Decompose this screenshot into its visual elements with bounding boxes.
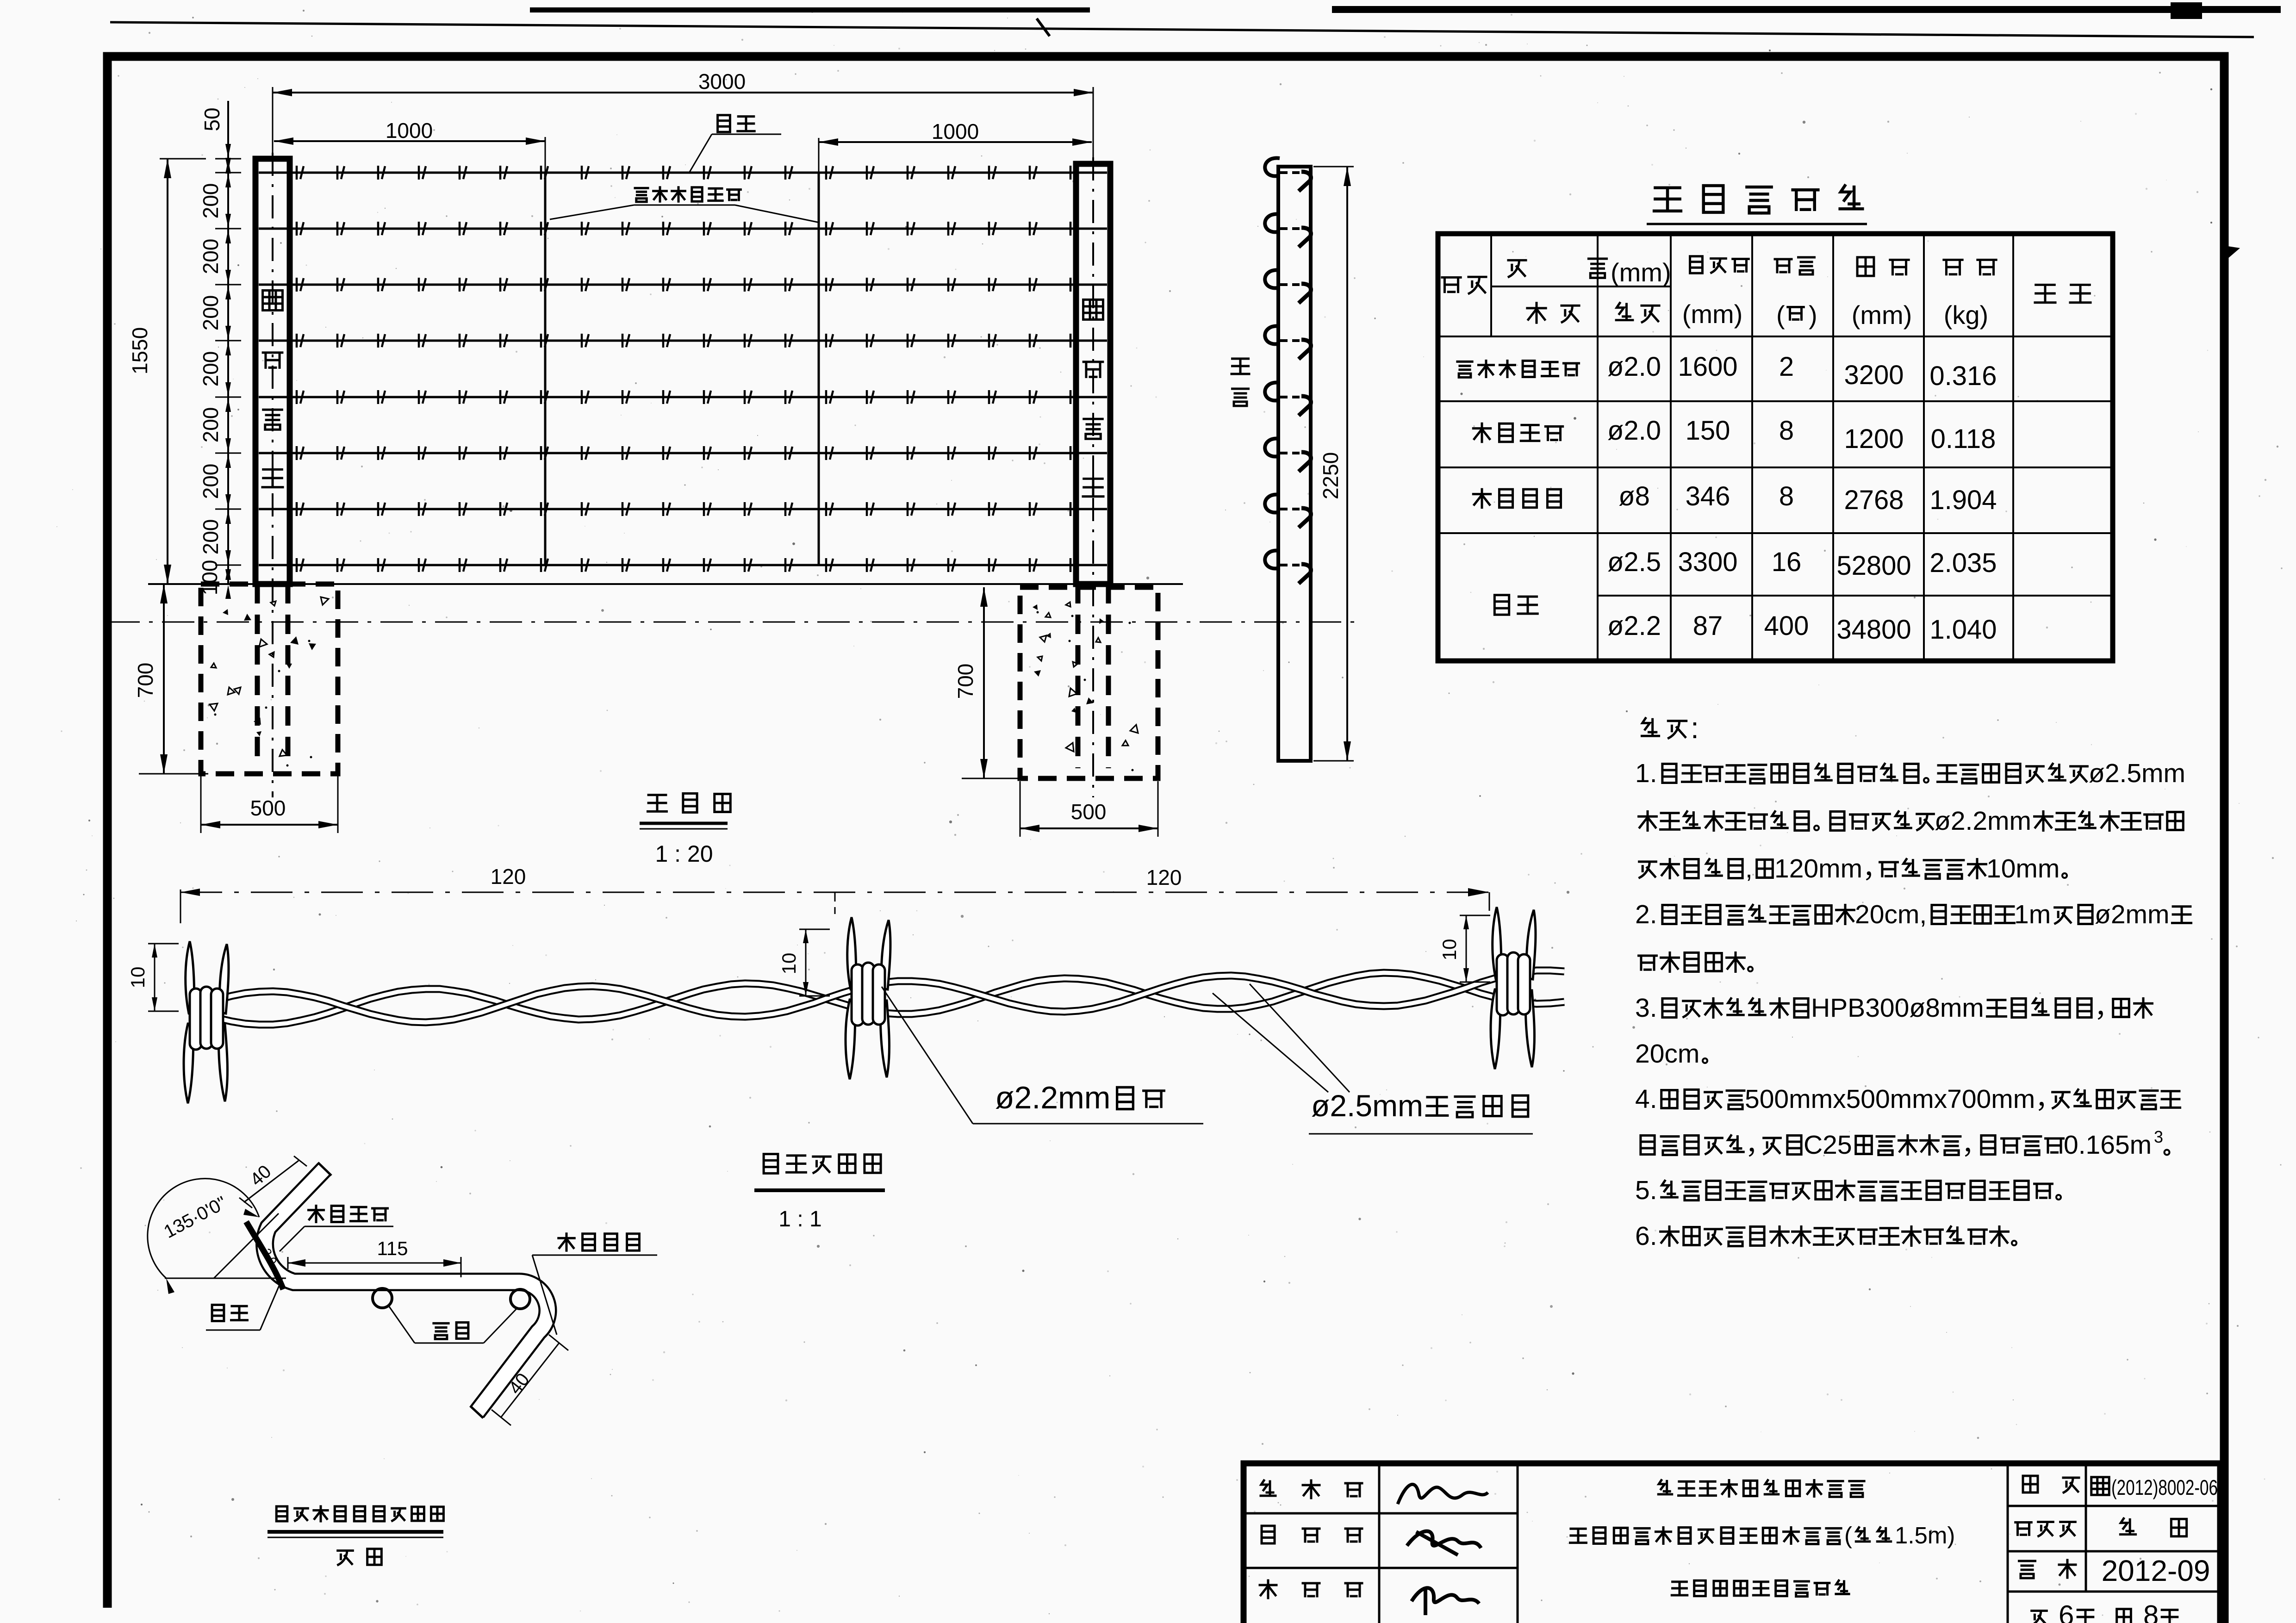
svg-text:(mm): (mm): [1852, 300, 1912, 330]
svg-text:1600: 1600: [1678, 352, 1737, 382]
svg-text:ø2.5: ø2.5: [1607, 547, 1661, 577]
svg-text:ø2.5mm: ø2.5mm: [1311, 1088, 1423, 1123]
svg-text:700: 700: [133, 663, 157, 698]
svg-text:4.: 4.: [1635, 1084, 1657, 1114]
svg-text:3200: 3200: [1844, 360, 1904, 390]
svg-text:HPB300ø8mm: HPB300ø8mm: [1811, 993, 1984, 1023]
svg-text:87: 87: [1693, 611, 1723, 641]
svg-text:2: 2: [1779, 352, 1794, 382]
svg-text::: :: [1691, 711, 1699, 745]
svg-text:2.: 2.: [1635, 900, 1657, 929]
svg-text:6: 6: [2059, 1600, 2074, 1623]
svg-text:): ): [1809, 300, 1817, 330]
svg-text:150: 150: [1686, 416, 1730, 446]
svg-text:1200: 1200: [1844, 424, 1904, 454]
svg-text:(: (: [1776, 300, 1785, 330]
svg-text:20cm,: 20cm,: [1855, 900, 1927, 929]
svg-text:ø2.5mm: ø2.5mm: [2089, 759, 2185, 788]
svg-text:52800: 52800: [1836, 551, 1911, 581]
svg-text:1m: 1m: [2014, 900, 2051, 929]
svg-text:ø2.0: ø2.0: [1607, 416, 1661, 446]
svg-text:400: 400: [1764, 611, 1809, 641]
svg-text:8: 8: [2143, 1600, 2159, 1623]
svg-text:2768: 2768: [1844, 485, 1904, 515]
svg-text:1.040: 1.040: [1929, 615, 1997, 645]
svg-text:100: 100: [198, 560, 222, 596]
svg-text:16: 16: [1772, 547, 1802, 577]
svg-text:500: 500: [1071, 800, 1107, 824]
svg-text:ø2.2mm: ø2.2mm: [1935, 806, 2031, 836]
svg-text:200: 200: [199, 351, 223, 387]
svg-text:(mm): (mm): [1611, 258, 1671, 287]
svg-text:1550: 1550: [128, 327, 152, 374]
svg-text:8: 8: [1779, 416, 1794, 446]
svg-text:5.: 5.: [1635, 1175, 1657, 1205]
svg-text:10: 10: [127, 967, 149, 989]
svg-text:3000: 3000: [698, 69, 746, 93]
svg-text:200: 200: [199, 519, 223, 555]
svg-text:10: 10: [778, 953, 800, 975]
svg-text:C25: C25: [1804, 1130, 1852, 1160]
svg-text:200: 200: [199, 464, 223, 499]
svg-text:ø8: ø8: [1618, 481, 1650, 511]
svg-text:ø2mm: ø2mm: [2095, 900, 2169, 929]
svg-text:10mm: 10mm: [1986, 854, 2060, 883]
svg-text:3300: 3300: [1678, 547, 1737, 577]
svg-text:1 : 1: 1 : 1: [778, 1207, 821, 1231]
svg-text:120mm，: 120mm，: [1774, 854, 1889, 883]
svg-text:(kg): (kg): [1944, 300, 1988, 330]
svg-text:115: 115: [377, 1237, 408, 1259]
svg-text:2012-09: 2012-09: [2102, 1554, 2210, 1587]
svg-text:,: ,: [1745, 854, 1753, 883]
svg-text:200: 200: [199, 239, 223, 274]
svg-text:50: 50: [200, 107, 224, 131]
svg-text:1 : 20: 1 : 20: [655, 841, 713, 867]
svg-text:(: (: [1844, 1522, 1852, 1548]
svg-text:700: 700: [953, 664, 977, 699]
svg-text:1.904: 1.904: [1929, 485, 1997, 515]
svg-text:1.: 1.: [1635, 759, 1657, 788]
svg-text:6.: 6.: [1635, 1221, 1657, 1251]
svg-text:34800: 34800: [1836, 615, 1911, 645]
svg-text:1000: 1000: [386, 118, 433, 143]
svg-text:(2012)8002-06: (2012)8002-06: [2111, 1475, 2218, 1499]
svg-text:200: 200: [199, 295, 223, 331]
svg-text:1000: 1000: [932, 119, 979, 143]
svg-text:500: 500: [250, 796, 286, 820]
svg-text:(mm): (mm): [1682, 299, 1743, 329]
svg-text:120: 120: [1146, 865, 1182, 889]
svg-text:120: 120: [491, 864, 526, 889]
svg-text:ø2.2mm: ø2.2mm: [995, 1080, 1110, 1115]
svg-text:3.: 3.: [1635, 993, 1657, 1023]
svg-text:200: 200: [199, 407, 223, 443]
svg-text:0.165m: 0.165m: [2064, 1130, 2152, 1160]
svg-text:1.5m): 1.5m): [1895, 1522, 1955, 1548]
svg-text:2250: 2250: [1319, 452, 1343, 499]
svg-text:500mmx500mmx700mm，: 500mmx500mmx700mm，: [1745, 1084, 2061, 1114]
svg-text:346: 346: [1686, 481, 1730, 511]
svg-text:ø2.2: ø2.2: [1607, 611, 1661, 641]
svg-text:3: 3: [2154, 1127, 2163, 1146]
svg-text:ø2.0: ø2.0: [1607, 352, 1661, 382]
svg-text:10: 10: [1438, 939, 1460, 961]
svg-text:8: 8: [1779, 481, 1794, 511]
svg-text:20cm: 20cm: [1635, 1039, 1699, 1069]
svg-text:2.035: 2.035: [1929, 548, 1997, 578]
svg-text:200: 200: [199, 183, 223, 219]
svg-text:0.316: 0.316: [1929, 361, 1997, 391]
svg-text:0.118: 0.118: [1931, 424, 1996, 454]
